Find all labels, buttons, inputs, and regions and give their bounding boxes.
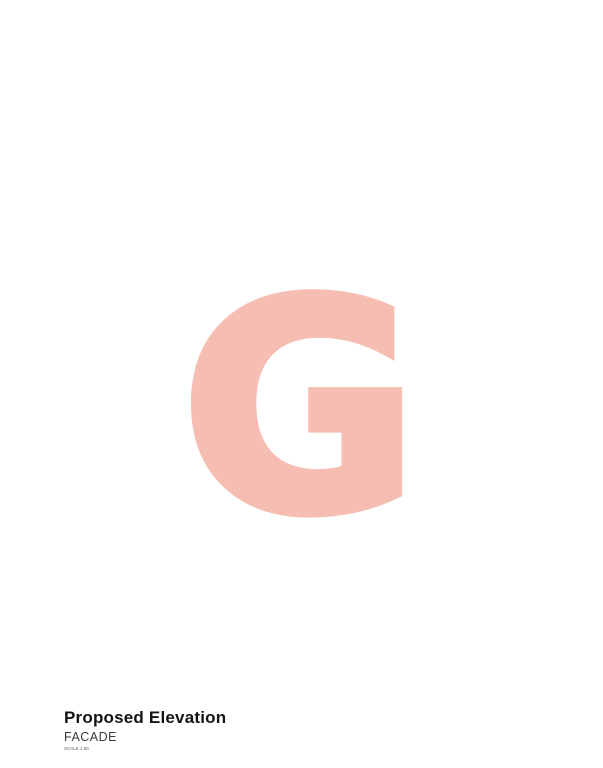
title-block: Proposed Elevation FACADE SCALE 1:50	[64, 708, 226, 753]
scale-note: SCALE 1:50	[64, 747, 186, 752]
elevation-sheet: G Proposed Elevation FACADE SCALE 1:50	[0, 0, 603, 768]
drawing-title: Proposed Elevation	[64, 708, 226, 728]
drawing-canvas	[0, 0, 603, 768]
drawing-subtitle: FACADE	[64, 730, 226, 744]
